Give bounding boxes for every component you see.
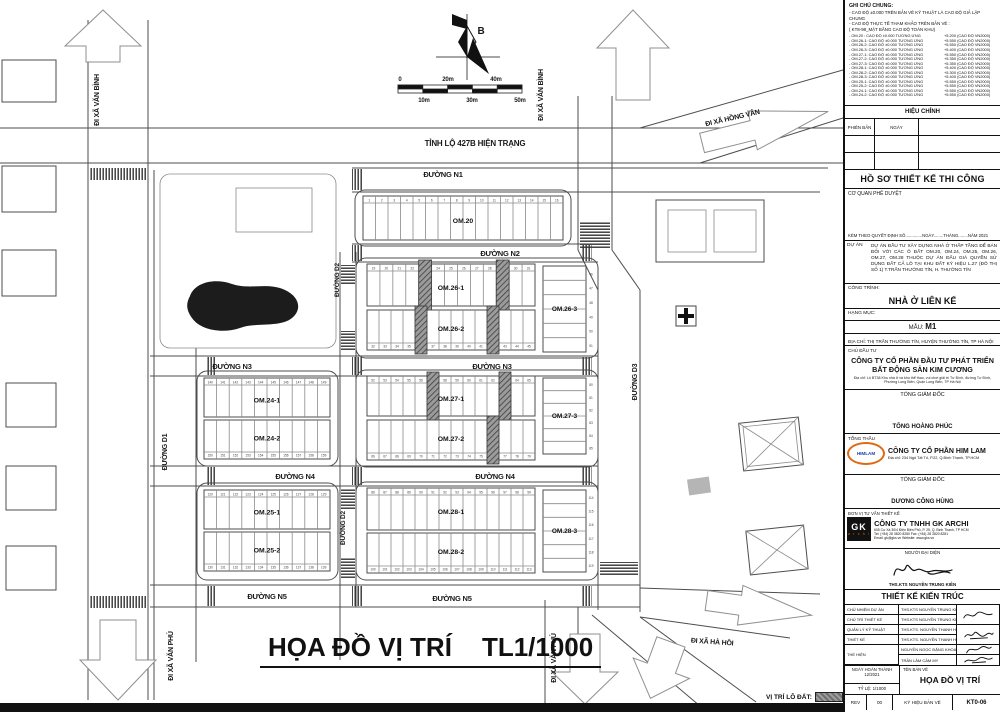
revision-col-version: PHIÊN BẢN [845, 119, 875, 135]
lot-block-OM.27-3: 808182838485OM.27-3 [543, 378, 593, 454]
lot-number: 35 [407, 345, 411, 349]
church-cross-icon [676, 306, 696, 326]
block-label: OM.25-1 [254, 510, 281, 517]
highlighted-lot-76 [487, 416, 499, 464]
design-consultant-section: ĐƠN VỊ TƯ VẤN THIẾT KẾ GK a r c h i CÔNG… [845, 509, 1000, 549]
lot-number: 157 [296, 454, 302, 458]
road-label: ĐƯỜNG N2 [480, 249, 519, 258]
lot-number: 68 [395, 455, 399, 459]
category-label: HẠNG MỤC: [845, 309, 1000, 318]
lot-number: 120 [208, 492, 214, 496]
lot-block-OM.20: 12345678910111213141516OM.20 [363, 196, 563, 240]
lot-number: 65 [527, 378, 531, 382]
lot-number: 20 [385, 266, 389, 270]
road-label: B [477, 26, 484, 37]
lot-number: 129 [321, 492, 327, 496]
director-name: TỐNG HOÀNG PHÚC [845, 424, 1000, 430]
lot-number: 24 [436, 266, 440, 270]
adjacent-buildings-left [2, 60, 56, 590]
lot-number: 37 [431, 345, 435, 349]
lot-number: 9 [468, 198, 470, 202]
director2-name: DƯƠNG CÔNG HÙNG [845, 499, 1000, 505]
lot-block-OM.27-1: 5253545556575859606162636465OM.27-1 [367, 372, 535, 420]
lot-number: 60 [467, 378, 471, 382]
lot-number: 71 [431, 455, 435, 459]
lot-number: 151 [220, 454, 226, 458]
lot-number: 146 [283, 380, 289, 384]
block-label: OM.28-3 [552, 528, 578, 535]
block-label: OM.20 [453, 218, 474, 225]
director-label: TỔNG GIÁM ĐỐC [845, 390, 1000, 398]
lot-number: 121 [220, 492, 226, 496]
lot-number: 124 [258, 492, 264, 496]
road-label: ĐƯỜNG D2 [338, 510, 347, 544]
building-x2 [746, 525, 808, 575]
staff-name: THS.KTS. NGUYỄN THANH HOÀN ÂN [899, 635, 957, 645]
lot-number: 48 [589, 301, 593, 305]
lot-number: 104 [418, 568, 424, 572]
building-x1 [739, 417, 804, 471]
lot-number: 1 [368, 198, 370, 202]
sheet-code-label: KÝ HIỆU BẢN VẼ [893, 695, 953, 710]
lot-number: 99 [527, 490, 531, 494]
lot-block-OM.25-2: 130131132133134135136137138139OM.25-2 [204, 532, 330, 571]
lot-number: 110 [490, 568, 495, 572]
lot-number: 98 [515, 490, 519, 494]
road-label: 10m [418, 98, 429, 104]
legend-label: VỊ TRÍ LÔ ĐẤT: [766, 694, 812, 701]
lot-number: 141 [220, 380, 226, 384]
lot-number: 156 [283, 454, 289, 458]
gk-archi-logo: GK a r c h i [847, 517, 871, 541]
scale-bar [398, 85, 522, 93]
lot-number: 154 [258, 454, 264, 458]
staff-signature [957, 655, 1000, 665]
contractor-section: TỔNG THẦU HIMLAM CÔNG TY CỔ PHẦN HIM LAM… [845, 434, 1000, 475]
frame-bottom-bar [0, 703, 843, 712]
arrow-south-left [80, 620, 156, 700]
rev-label: REV [845, 695, 867, 710]
lot-number: 105 [430, 568, 436, 572]
lot-number: 73 [455, 455, 459, 459]
contractor-name: CÔNG TY CỔ PHẦN HIM LAM [888, 448, 986, 455]
lot-block-OM.26-1: 19202122232425262728293031OM.26-1 [367, 260, 535, 310]
lot-number: 31 [527, 266, 531, 270]
lot-number: 97 [503, 490, 507, 494]
lot-number: 47 [589, 287, 593, 291]
works-label: CÔNG TRÌNH: [845, 284, 1000, 293]
lot-number: 132 [233, 566, 239, 570]
architecture-design-header: THIẾT KẾ KIẾN TRÚC [845, 590, 1000, 605]
project-description: DỰ ÁN ĐẦU TƯ XÂY DỰNG NHÀ Ở THẤP TẦNG ĐỂ… [871, 241, 1000, 283]
lot-block-OM.28-2: 1001011021031041051061071081091101111121… [367, 533, 535, 573]
lot-number: 150 [208, 454, 214, 458]
lot-number: 155 [271, 454, 277, 458]
lot-number: 50 [589, 330, 593, 334]
works-section: CÔNG TRÌNH: NHÀ Ở LIÊN KẾ [845, 284, 1000, 309]
road-label: ĐƯỜNG N4 [275, 472, 315, 481]
lot-number: 58 [443, 378, 447, 382]
lot-number: 115 [588, 510, 593, 514]
sheet-name-label: TÊN BẢN VẼ [900, 666, 1000, 672]
lot-number: 80 [589, 383, 593, 387]
lot-number: 158 [308, 454, 314, 458]
lot-number: 52 [371, 378, 375, 382]
address-line: ĐỊA CHỈ: THỊ TRẤN THƯỜNG TÍN, HUYỆN THƯỜ… [845, 334, 1000, 346]
lot-number: 103 [406, 568, 412, 572]
lot-number: 70 [419, 455, 423, 459]
lot-number: 159 [321, 454, 327, 458]
lot-number: 131 [220, 566, 226, 570]
lot-number: 122 [233, 492, 239, 496]
staff-role: THỂ HIỆN [845, 645, 899, 665]
lot-number: 108 [466, 568, 472, 572]
lot-number: 118 [588, 551, 593, 555]
lot-block-OM.24-1: 140141142143144145146147148149OM.24-1 [204, 378, 330, 417]
director-section-1: TỔNG GIÁM ĐỐC TỐNG HOÀNG PHÚC [845, 390, 1000, 434]
block-label: OM.27-1 [438, 396, 465, 403]
lot-number: 5 [418, 198, 420, 202]
lot-block-OM.28-1: 8687888990919293949596979899OM.28-1 [367, 488, 535, 530]
road-label: TỈNH LỘ 427B HIỆN TRẠNG [425, 139, 526, 148]
contractor-label: TỔNG THẦU [845, 434, 1000, 441]
revision-empty-row [845, 153, 1000, 170]
lot-number: 96 [491, 490, 495, 494]
block-label: OM.24-2 [254, 436, 281, 443]
drawing-title: HỌA ĐỒ VỊ TRÍTL1/1000 [260, 632, 601, 668]
investor-name: CÔNG TY CỔ PHẦN ĐẦU TƯ PHÁT TRIỂN BẤT ĐỘ… [845, 357, 1000, 374]
model-section: MẪU: M1 [845, 321, 1000, 334]
category-section: HẠNG MỤC: [845, 309, 1000, 321]
lot-number: 125 [271, 492, 277, 496]
lot-number: 75 [479, 455, 483, 459]
lot-number: 87 [383, 490, 387, 494]
lot-number: 88 [395, 490, 399, 494]
road-label: ĐƯỜNG N1 [423, 170, 462, 179]
staff-name: THS.KTS. NGUYỄN THANH HOÀN ÂN [899, 625, 957, 635]
lot-number: 51 [589, 344, 593, 348]
lot-number: 147 [296, 380, 302, 384]
staff-role: CHỦ TRÌ THIẾT KẾ [845, 615, 899, 625]
dossier-title: HỒ SƠ THIẾT KẾ THI CÔNG [845, 170, 1000, 189]
arrow-north-center [597, 10, 669, 100]
lot-number: 100 [370, 568, 376, 572]
pond [187, 281, 298, 330]
lot-number: 38 [443, 345, 447, 349]
lot-number: 92 [443, 490, 447, 494]
lot-number: 13 [517, 198, 521, 202]
staff-signature [957, 625, 1000, 645]
lot-number: 6 [431, 198, 433, 202]
arrow-south-diagonal [622, 632, 699, 709]
lot-number: 72 [443, 455, 447, 459]
representative-name: THS.KTS NGUYỄN TRUNG KIÊN [845, 582, 1000, 587]
note-line: - CAO ĐỘ ±0.000 TRÊN BẢN VẼ KỸ THUẬT LÀ … [849, 10, 996, 21]
model-label: MẪU: [909, 325, 924, 331]
title-block: GHI CHÚ CHUNG: - CAO ĐỘ ±0.000 TRÊN BẢN … [843, 0, 1000, 712]
road-label: ĐI XÃ VĂN BÌNH [92, 74, 101, 126]
lot-number: 78 [515, 455, 519, 459]
lot-number: 19 [372, 266, 376, 270]
block-label: OM.28-2 [438, 549, 465, 556]
lot-number: 10 [480, 198, 484, 202]
block-label: OM.27-2 [438, 436, 465, 443]
lot-number: 14 [530, 198, 534, 202]
investor-section: CHỦ ĐẦU TƯ CÔNG TY CỔ PHẦN ĐẦU TƯ PHÁT T… [845, 346, 1000, 390]
lot-number: 140 [208, 380, 214, 384]
block-label: OM.26-2 [438, 326, 465, 333]
lot-block-OM.25-1: 120121122123124125126127128129OM.25-1 [204, 490, 330, 529]
lot-number: 45 [527, 345, 531, 349]
lot-number: 30 [514, 266, 518, 270]
highlighted-lot-63 [499, 372, 511, 420]
lot-number: 134 [258, 566, 264, 570]
arrow-ha-hoi [704, 581, 815, 635]
lot-number: 53 [383, 378, 387, 382]
block-label: OM.27-3 [552, 413, 578, 420]
lot-number: 69 [407, 455, 411, 459]
lot-number: 149 [321, 380, 327, 384]
staff-role: QUẢN LÝ KỸ THUẬT [845, 625, 899, 635]
road-label: ĐƯỜNG N5 [432, 594, 471, 603]
lot-number: 152 [233, 454, 239, 458]
lot-number: 39 [455, 345, 459, 349]
direction-arrows [65, 10, 833, 709]
lot-number: 143 [245, 380, 251, 384]
lot-number: 128 [308, 492, 314, 496]
lot-number: 54 [395, 378, 399, 382]
road-label: 0 [398, 77, 402, 83]
lot-number: 3 [393, 198, 395, 202]
road-label: 20m [442, 77, 453, 83]
lot-number: 64 [515, 378, 519, 382]
gray-structure [687, 477, 711, 496]
notes-elevations: - OM.20 : CAO ĐỘ ±0.000 TƯƠNG ỨNG+5.200 … [849, 34, 996, 98]
road-label: ĐI XÃ VĂN PHÚ [166, 631, 175, 681]
lot-number: 117 [588, 537, 593, 541]
lot-number: 55 [407, 378, 411, 382]
director-section-2: TỔNG GIÁM ĐỐC DƯƠNG CÔNG HÙNG [845, 475, 1000, 509]
lot-number: 11 [493, 198, 497, 202]
lot-number: 2 [381, 198, 383, 202]
lot-block-OM.26-2: 3233343536373839404142434445OM.26-2 [367, 306, 535, 354]
road-label: ĐƯỜNG D1 [160, 433, 169, 470]
lot-number: 144 [258, 380, 264, 384]
lot-number: 137 [296, 566, 302, 570]
project-label: DỰ ÁN [845, 241, 871, 283]
rev-value: 00 [867, 695, 893, 710]
sheet-name: HỌA ĐỒ VỊ TRÍ [900, 675, 1000, 685]
lot-block-OM.27-2: 6667686970717273747576777879OM.27-2 [367, 416, 535, 464]
site-plan-drawing: 12345678910111213141516OM.20192021222324… [0, 0, 843, 712]
road-label: ĐƯỜNG N3 [212, 362, 251, 371]
highlighted-lot-36 [415, 306, 427, 354]
lot-number: 46 [589, 272, 593, 276]
revision-empty-row [845, 136, 1000, 153]
lot-number: 89 [407, 490, 411, 494]
consultant-email: Email: gk@gks.vn Website: www.gks.vn [874, 536, 969, 540]
lot-number: 86 [371, 490, 375, 494]
lot-number: 94 [467, 490, 471, 494]
staff-table: CHỦ NHIỆM DỰ ÁN THS.KTS NGUYỄN TRUNG KIÊ… [845, 605, 1000, 666]
lot-number: 4 [406, 198, 408, 202]
lot-number: 123 [245, 492, 251, 496]
lot-number: 127 [296, 492, 302, 496]
lot-number: 126 [283, 492, 289, 496]
lot-number: 114 [588, 496, 593, 500]
lot-number: 32 [371, 345, 375, 349]
works-name: NHÀ Ở LIÊN KẾ [845, 296, 1000, 306]
consultant-label: ĐƠN VỊ TƯ VẤN THIẾT KẾ [845, 509, 1000, 516]
staff-role: CHỦ NHIỆM DỰ ÁN [845, 605, 899, 615]
lot-number: 79 [527, 455, 531, 459]
lot-number: 112 [514, 568, 519, 572]
legend: VỊ TRÍ LÔ ĐẤT: [766, 692, 843, 702]
lot-number: 43 [503, 345, 507, 349]
approval-label: CƠ QUAN PHÊ DUYỆT [845, 189, 1000, 199]
lot-block-OM.28-3: 114115116117118119OM.28-3 [543, 490, 594, 572]
staff-name: NGUYỄN NGỌC ĐẶNG KHOA [899, 645, 957, 655]
lot-number: 67 [383, 455, 387, 459]
lot-number: 49 [589, 315, 593, 319]
north-compass-icon [436, 14, 500, 80]
staff-signature [957, 605, 1000, 625]
block-label: OM.25-2 [254, 548, 281, 555]
highlighted-lot-29 [496, 260, 509, 310]
lot-number: 83 [589, 421, 593, 425]
lot-number: 84 [589, 434, 593, 438]
lot-number: 113 [526, 568, 531, 572]
lot-number: 62 [491, 378, 495, 382]
himlam-logo: HIMLAM [847, 442, 885, 465]
lot-block-OM.26-3: 464748495051OM.26-3 [543, 266, 593, 352]
road-label: ĐƯỜNG N5 [247, 592, 286, 601]
lot-blocks-layer: 12345678910111213141516OM.20192021222324… [197, 190, 598, 580]
lot-number: 139 [321, 566, 327, 570]
lot-number: 15 [542, 198, 546, 202]
lot-number: 27 [475, 266, 479, 270]
lot-number: 85 [589, 447, 593, 451]
lot-number: 25 [449, 266, 453, 270]
lot-number: 111 [503, 568, 508, 572]
lot-number: 102 [394, 568, 400, 572]
general-notes: GHI CHÚ CHUNG: - CAO ĐỘ ±0.000 TRÊN BẢN … [845, 0, 1000, 106]
representative-label: NGƯỜI ĐẠI DIỆN [845, 549, 1000, 555]
elevation-note: - OM.24-2: CAO ĐỘ ±0.000 TƯƠNG ỨNG+5.550… [849, 93, 996, 98]
lot-number: 33 [383, 345, 387, 349]
road-label: ĐI XÃ VĂN BÌNH [536, 69, 545, 121]
lot-number: 106 [442, 568, 448, 572]
revision-row: REV 00 KÝ HIỆU BẢN VẼ KT0-06 [845, 695, 1000, 710]
representative-signature [888, 557, 958, 579]
scale-cell: TỶ LỆ: 1/1000 [845, 684, 899, 694]
lot-number: 107 [454, 568, 460, 572]
decision-line: KÈM THEO QUYẾT ĐỊNH SỐ..............NGÀY… [848, 233, 997, 238]
lot-number: 101 [382, 568, 388, 572]
lot-number: 93 [455, 490, 459, 494]
investor-label: CHỦ ĐẦU TƯ [845, 346, 1000, 355]
lot-number: 56 [419, 378, 423, 382]
park-area [160, 174, 336, 348]
lot-number: 7 [443, 198, 445, 202]
highlighted-lot-42 [487, 306, 499, 354]
model-value: M1 [925, 322, 936, 331]
lot-number: 77 [503, 455, 507, 459]
lot-number: 148 [308, 380, 314, 384]
lot-number: 138 [308, 566, 314, 570]
note-line: ( KT8-98_MẶT BẰNG CAO ĐỘ TOÀN KHU) [849, 27, 996, 33]
drawing-sheet: 12345678910111213141516OM.20192021222324… [0, 0, 1000, 712]
block-label: OM.26-3 [552, 306, 578, 313]
lot-number: 41 [479, 345, 483, 349]
notes-intro: - CAO ĐỘ ±0.000 TRÊN BẢN VẼ KỸ THUẬT LÀ … [849, 10, 996, 32]
legend-hatch-swatch [815, 692, 843, 702]
contractor-address: Địa chỉ: 234 Ngô Tất Tố, P.22, Q.Bình Th… [888, 456, 986, 460]
staff-name: THS.KTS NGUYỄN TRUNG KIÊN [899, 615, 957, 625]
title-scale: TL1/1000 [482, 632, 593, 662]
staff-role: THIẾT KẾ [845, 635, 899, 645]
block-label: OM.24-1 [254, 398, 281, 405]
revision-header: HIỆU CHỈNH [845, 106, 1000, 119]
approval-authority: CƠ QUAN PHÊ DUYỆT KÈM THEO QUYẾT ĐỊNH SỐ… [845, 189, 1000, 241]
lot-number: 145 [271, 380, 277, 384]
lot-number: 81 [589, 396, 593, 400]
lot-number: 142 [233, 380, 239, 384]
investor-address: Địa chỉ: Lô BT38 Khu nhà ở và khu thể th… [845, 376, 1000, 385]
lot-number: 95 [479, 490, 483, 494]
lot-number: 133 [245, 566, 251, 570]
road-label: 30m [466, 98, 477, 104]
representative-section: NGƯỜI ĐẠI DIỆN THS.KTS NGUYỄN TRUNG KIÊN [845, 549, 1000, 590]
lot-number: 40 [467, 345, 471, 349]
block-label: OM.26-1 [438, 285, 465, 292]
lot-number: 135 [271, 566, 277, 570]
lot-number: 12 [505, 198, 509, 202]
staff-signature [957, 645, 1000, 655]
staff-name: THS.KTS NGUYỄN TRUNG KIÊN [899, 605, 957, 615]
crosswalk-markings [90, 168, 638, 608]
lot-number: 91 [431, 490, 435, 494]
road-label: ĐƯỜNG D3 [630, 363, 639, 400]
sheet-code: KT0-06 [953, 695, 1000, 710]
title-text: HỌA ĐỒ VỊ TRÍ [268, 632, 452, 662]
completion-date: NGÀY HOÀN THÀNH 12/2021 [845, 666, 899, 684]
adjacent-buildings-right [656, 200, 808, 575]
road-label: ĐI XÃ HÀ HỒI [691, 635, 735, 648]
lot-number: 66 [371, 455, 375, 459]
lot-number: 130 [208, 566, 214, 570]
lot-number: 21 [398, 266, 402, 270]
lot-number: 16 [555, 198, 559, 202]
block-label: OM.28-1 [438, 509, 465, 516]
project-section: DỰ ÁN DỰ ÁN ĐẦU TƯ XÂY DỰNG NHÀ Ở THẤP T… [845, 241, 1000, 284]
lot-number: 59 [455, 378, 459, 382]
lot-number: 28 [488, 266, 492, 270]
notes-title: GHI CHÚ CHUNG: [849, 3, 996, 9]
lot-number: 26 [462, 266, 466, 270]
lot-number: 90 [419, 490, 423, 494]
lot-number: 109 [478, 568, 484, 572]
director2-label: TỔNG GIÁM ĐỐC [845, 475, 1000, 483]
lot-number: 8 [456, 198, 458, 202]
lot-number: 74 [467, 455, 471, 459]
revision-columns: PHIÊN BẢN NGÀY [845, 119, 1000, 136]
lot-number: 82 [589, 409, 593, 413]
road-label: ĐƯỜNG D2 [332, 262, 341, 296]
sheet-info: NGÀY HOÀN THÀNH 12/2021 TỶ LỆ: 1/1000 TÊ… [845, 666, 1000, 695]
road-label: 40m [490, 77, 501, 83]
revision-col-date: NGÀY [875, 119, 919, 135]
